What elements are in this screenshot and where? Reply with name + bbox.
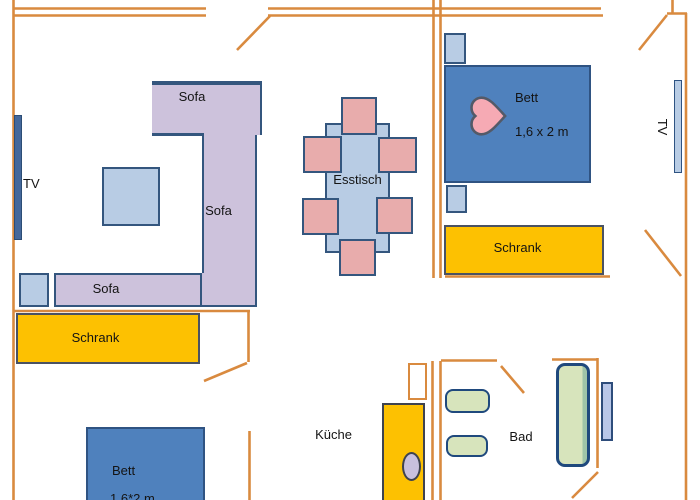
bed-second-size: 1,6*2 m	[110, 492, 155, 500]
bath-fixture-lower	[446, 435, 488, 457]
sofa-bottom-label: Sofa	[61, 282, 151, 296]
bed-second	[86, 427, 205, 500]
kitchen-cabinet	[382, 403, 425, 500]
heart-icon	[465, 94, 511, 138]
bed-second-label: Bett	[112, 464, 135, 478]
sofa-top-label: Sofa	[147, 90, 237, 104]
bath-shelf	[601, 382, 613, 441]
kitchen-sink	[402, 452, 421, 481]
dining-chair-top	[341, 97, 377, 135]
bed-main-label: Bett	[515, 91, 538, 105]
dining-chair-bottom	[339, 239, 376, 276]
bath-fixture-upper	[445, 389, 490, 413]
door-swing-top-right	[639, 15, 667, 50]
nightstand-lower	[446, 185, 467, 213]
door-swing-bedroom2	[204, 363, 247, 381]
tv-left	[14, 115, 22, 240]
side-table	[19, 273, 49, 307]
nightstand-upper	[444, 33, 466, 64]
bed-main-size: 1,6 x 2 m	[515, 125, 568, 139]
wardrobe-living-label: Schrank	[20, 331, 171, 345]
dining-table-label: Esstisch	[325, 173, 390, 187]
door-swing-hall	[645, 230, 681, 276]
dining-chair-left-upper	[303, 136, 342, 173]
tv-right-label: TV	[655, 115, 669, 139]
tv-left-label: TV	[23, 177, 40, 191]
bathtub	[556, 363, 590, 467]
sofa-top-underline	[152, 133, 204, 136]
door-swing-bath-south	[572, 472, 598, 498]
kitchen-label: Küche	[306, 428, 361, 442]
dining-chair-left-lower	[302, 198, 339, 235]
bathroom-label: Bad	[503, 430, 539, 444]
door-swing-top-left	[237, 16, 270, 50]
coffee-table	[102, 167, 160, 226]
sofa-right-label: Sofa	[196, 204, 241, 218]
tv-right	[674, 80, 682, 173]
kitchen-counter	[408, 363, 427, 400]
door-swing-bath-north	[501, 366, 524, 393]
sofa-corner	[200, 273, 257, 307]
wardrobe-bedroom-label: Schrank	[444, 241, 591, 255]
floor-plan: TV Sofa Sofa Sofa Schrank Esstisch Bett …	[0, 0, 700, 500]
dining-chair-right-lower	[376, 197, 413, 234]
dining-chair-right-upper	[378, 137, 417, 173]
